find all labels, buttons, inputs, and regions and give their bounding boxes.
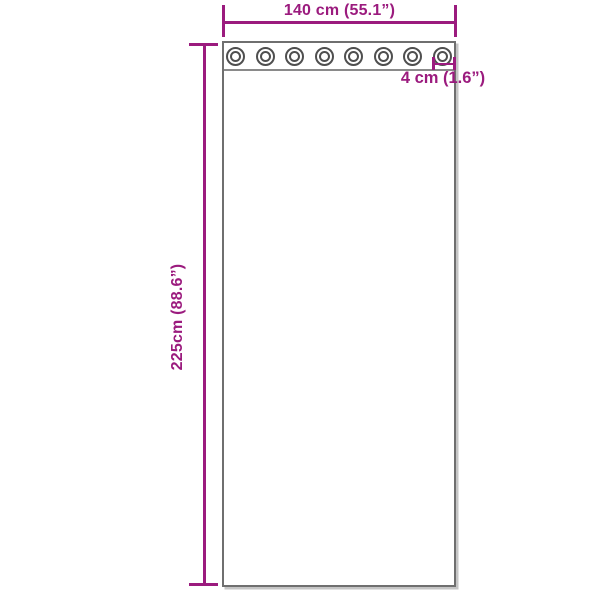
grommet-icon xyxy=(256,47,275,66)
curtain-panel xyxy=(222,41,456,587)
width-dimension-label: 140 cm (55.1”) xyxy=(223,2,456,19)
grommet-icon xyxy=(344,47,363,66)
grommet-icon xyxy=(403,47,422,66)
height-dimension-label: 225cm (88.6”) xyxy=(169,256,187,378)
width-dimension-line xyxy=(224,21,455,24)
dimension-diagram: 140 cm (55.1”) 225cm (88.6”) 4 cm (1.6”) xyxy=(0,0,600,600)
grommet-icon xyxy=(285,47,304,66)
height-dimension-line xyxy=(203,44,206,584)
grommet-inner-ring xyxy=(230,51,241,62)
grommet-inner-ring xyxy=(378,51,389,62)
grommet-dimension-label: 4 cm (1.6”) xyxy=(399,69,487,87)
grommet-band xyxy=(224,43,454,71)
grommet-dimension-line xyxy=(433,63,455,65)
grommet-inner-ring xyxy=(289,51,300,62)
grommet-icon xyxy=(226,47,245,66)
grommet-inner-ring xyxy=(319,51,330,62)
height-dimension-tick-bottom xyxy=(189,583,218,586)
height-dimension-tick-top xyxy=(189,43,218,46)
grommet-inner-ring xyxy=(260,51,271,62)
grommet-inner-ring xyxy=(407,51,418,62)
grommet-icon xyxy=(315,47,334,66)
grommet-inner-ring xyxy=(348,51,359,62)
grommet-icon xyxy=(374,47,393,66)
grommet-inner-ring xyxy=(437,51,448,62)
